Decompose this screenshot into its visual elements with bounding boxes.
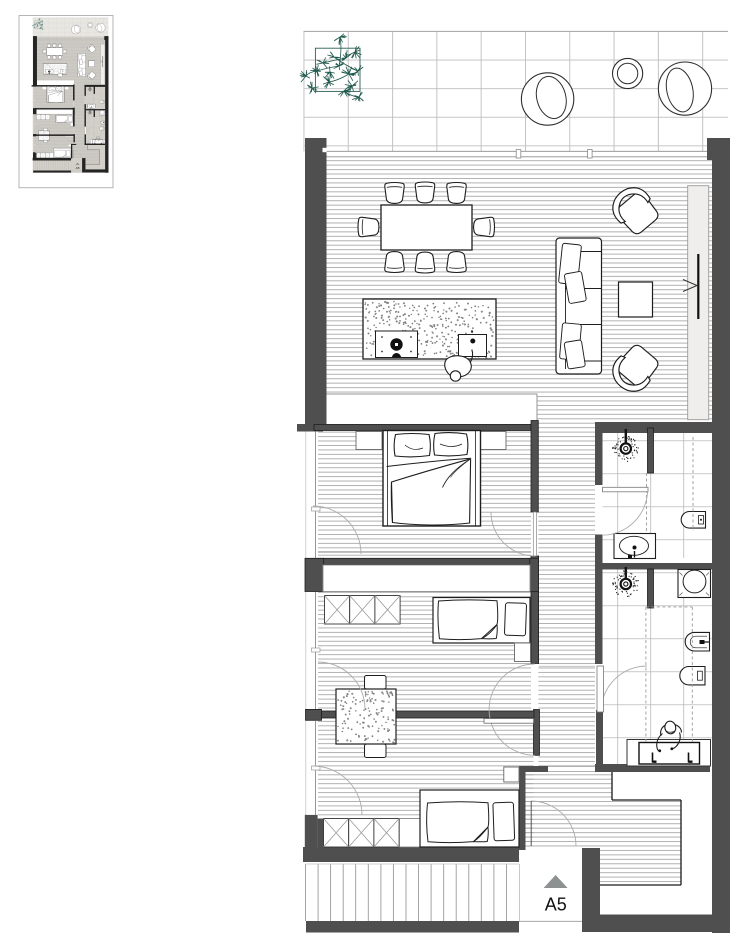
svg-text:A5: A5 bbox=[545, 895, 567, 915]
